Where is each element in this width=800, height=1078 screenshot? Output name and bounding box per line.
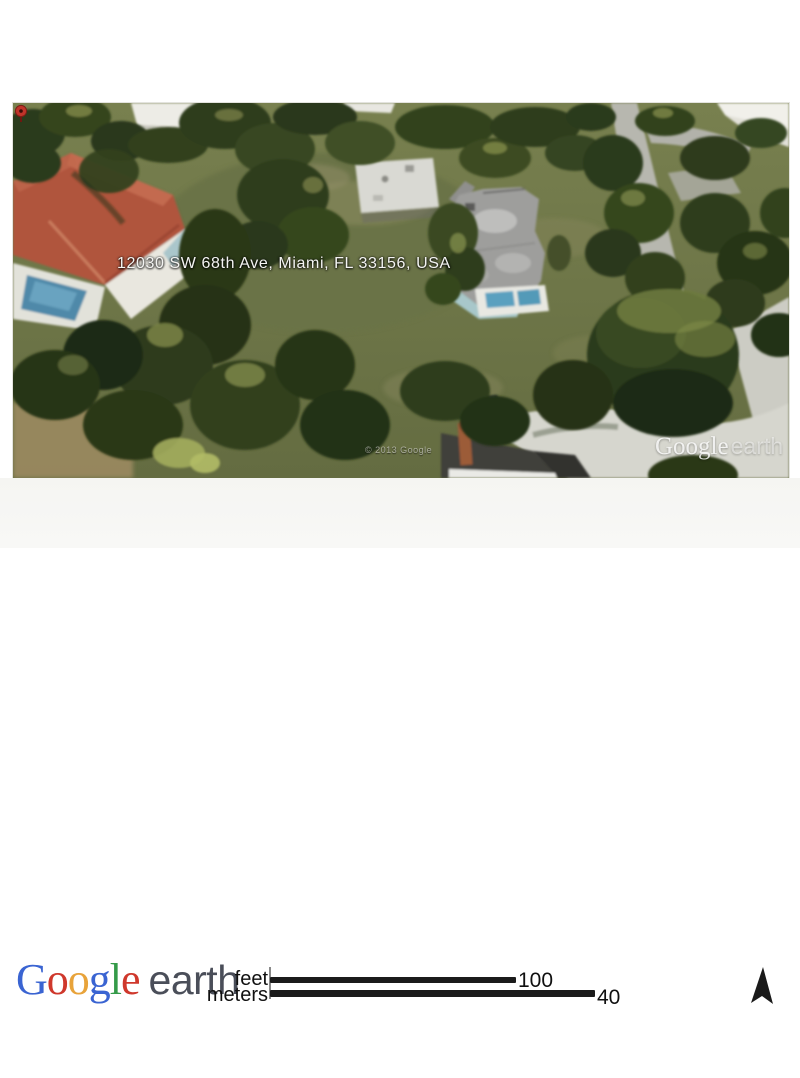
footer-lower-margin bbox=[0, 1026, 800, 1078]
google-earth-watermark: Googleearth bbox=[655, 433, 783, 461]
north-arrow-icon[interactable] bbox=[750, 967, 774, 1007]
address-label: 12030 SW 68th Ave, Miami, FL 33156, USA bbox=[117, 255, 451, 273]
scale-bar-meters bbox=[270, 990, 595, 997]
scale-bar-feet bbox=[270, 977, 516, 983]
logo-letter: l bbox=[110, 955, 121, 1004]
logo-letter: G bbox=[16, 955, 47, 1004]
logo-letter: e bbox=[121, 955, 140, 1004]
scale-meters-label: meters bbox=[188, 984, 268, 1007]
logo-letter: o bbox=[68, 955, 89, 1004]
watermark-earth-text: earth bbox=[731, 433, 783, 459]
scale-meters-value: 40 bbox=[597, 986, 620, 1010]
google-logo-text: Google bbox=[16, 955, 140, 1004]
logo-letter: o bbox=[47, 955, 68, 1004]
footer-bar: Googleearth feet 100 meters 40 bbox=[0, 478, 800, 548]
satellite-map-view[interactable]: 12030 SW 68th Ave, Miami, FL 33156, USA … bbox=[13, 103, 789, 478]
satellite-imagery bbox=[13, 103, 789, 478]
logo-letter: g bbox=[89, 955, 110, 1004]
location-pin-icon[interactable] bbox=[13, 103, 29, 123]
copyright-text: © 2013 Google bbox=[365, 445, 432, 455]
watermark-google-text: Google bbox=[655, 433, 729, 460]
